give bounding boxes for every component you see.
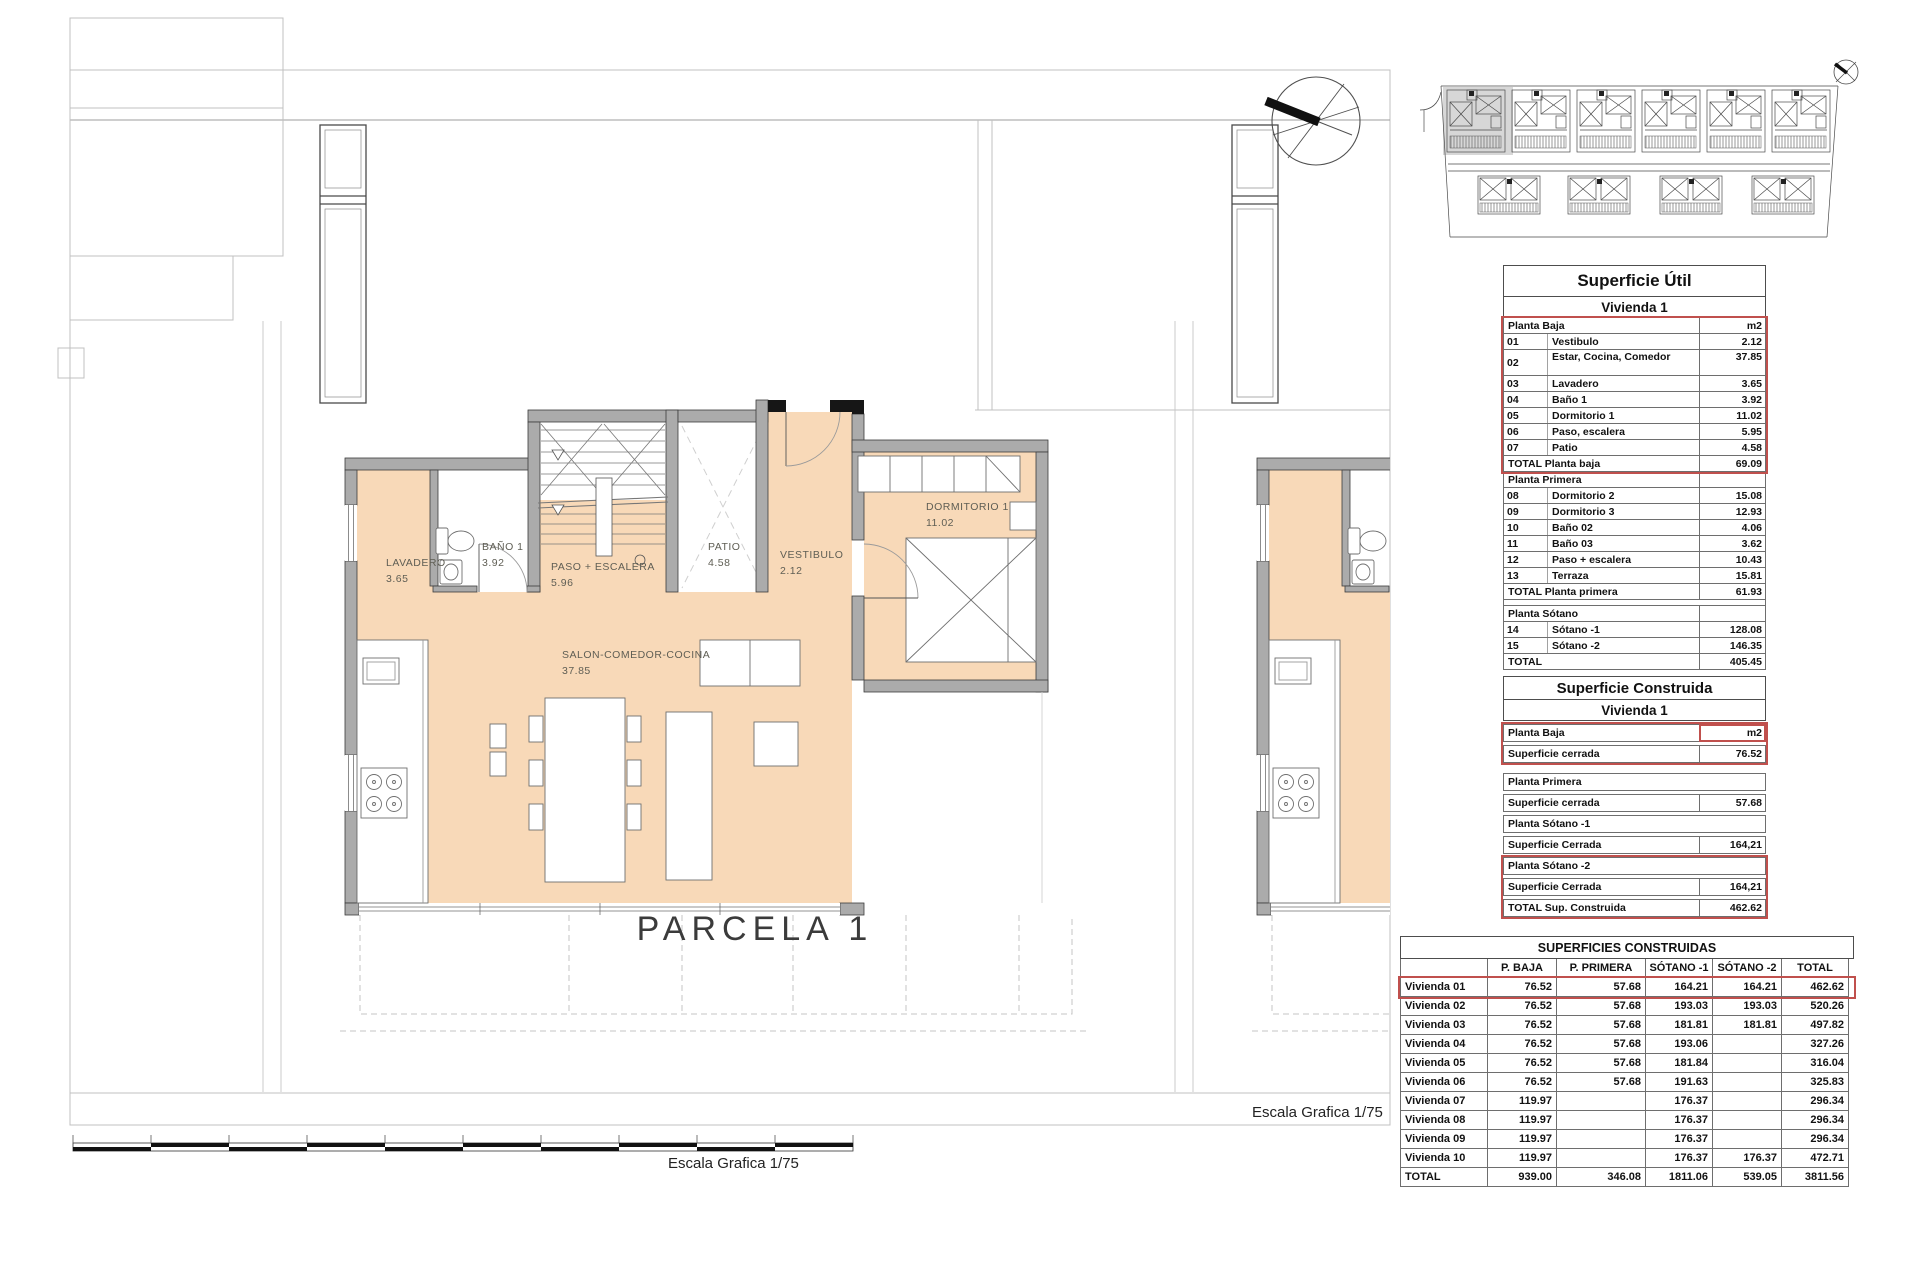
table-title: SUPERFICIES CONSTRUIDAS (1400, 936, 1854, 959)
table-row: 05Dormitorio 111.02 (1503, 408, 1766, 424)
row-label: Lavadero (1548, 376, 1699, 391)
table-row: Vivienda 07119.97176.37296.34 (1400, 1092, 1854, 1111)
row-value: 164.21 (1645, 978, 1713, 997)
row-value: 181.84 (1645, 1054, 1713, 1073)
row-label: Vivienda 08 (1400, 1111, 1488, 1130)
table-row: 02Estar, Cocina, Comedor37.85 (1503, 350, 1766, 376)
row-label: Superficie cerrada (1504, 746, 1699, 762)
row-number: 06 (1504, 424, 1548, 439)
parcel-title: PARCELA 1 (595, 910, 915, 949)
row-value: 10.43 (1699, 552, 1765, 567)
table-row: Planta Primera (1503, 773, 1766, 791)
row-number: 12 (1504, 552, 1548, 567)
row-value: 3811.56 (1781, 1168, 1849, 1187)
row-value (1712, 1073, 1782, 1092)
table-row: TOTAL939.00346.081811.06539.053811.56 (1400, 1168, 1854, 1187)
table-title: Superficie Útil (1503, 265, 1766, 297)
row-label: TOTAL (1400, 1168, 1488, 1187)
table-row: 14Sótano -1128.08 (1503, 622, 1766, 638)
row-value: 164,21 (1699, 879, 1765, 895)
table-row: 11Baño 033.62 (1503, 536, 1766, 552)
row-number: 03 (1504, 376, 1548, 391)
row-value: 3.62 (1699, 536, 1765, 551)
column-header: SÓTANO -2 (1712, 959, 1782, 978)
row-label: Sótano -2 (1548, 638, 1699, 653)
row-value (1556, 1130, 1646, 1149)
table-row: Planta Sótano (1503, 606, 1766, 622)
scale-caption-right: Escala Grafica 1/75 (1252, 1104, 1383, 1121)
row-label: TOTAL Planta primera (1504, 584, 1699, 599)
row-value: m2 (1700, 725, 1765, 741)
room-name: PASO + ESCALERA (551, 561, 655, 573)
table-row: 04Baño 13.92 (1503, 392, 1766, 408)
table-row: 12Paso + escalera10.43 (1503, 552, 1766, 568)
row-value (1712, 1111, 1782, 1130)
row-value: 939.00 (1487, 1168, 1557, 1187)
row-value: 57.68 (1556, 1073, 1646, 1092)
row-value (1712, 1092, 1782, 1111)
row-value: 76.52 (1487, 978, 1557, 997)
red-highlight-box: Planta Bajam201Vestibulo2.1202Estar, Coc… (1503, 318, 1766, 472)
table-row: Vivienda 0476.5257.68193.06327.26 (1400, 1035, 1854, 1054)
row-label: Paso + escalera (1548, 552, 1699, 567)
row-label: Vivienda 04 (1400, 1035, 1488, 1054)
table-header-row: P. BAJAP. PRIMERASÓTANO -1SÓTANO -2TOTAL (1400, 959, 1854, 978)
row-value: 4.58 (1699, 440, 1765, 455)
table-row: 15Sótano -2146.35 (1503, 638, 1766, 654)
row-value: 462.62 (1781, 978, 1849, 997)
table-body: Planta Bajam201Vestibulo2.1202Estar, Coc… (1503, 318, 1766, 670)
room-label-dormitorio1: DORMITORIO 1 11.02 (926, 500, 1009, 532)
table-row: Vivienda 0276.5257.68193.03193.03520.26 (1400, 997, 1854, 1016)
row-value: 15.08 (1699, 488, 1765, 503)
row-value: 119.97 (1487, 1130, 1557, 1149)
site-context-lines (58, 18, 1390, 1125)
row-value: 405.45 (1699, 654, 1765, 669)
row-value: 1811.06 (1645, 1168, 1713, 1187)
row-value: 181.81 (1712, 1016, 1782, 1035)
row-value: 316.04 (1781, 1054, 1849, 1073)
table-row: TOTAL Planta primera61.93 (1503, 584, 1766, 600)
row-value: 325.83 (1781, 1073, 1849, 1092)
row-label: Baño 02 (1548, 520, 1699, 535)
room-area: 37.85 (562, 664, 710, 680)
room-label-paso-escalera: PASO + ESCALERA 5.96 (551, 560, 655, 592)
table-row: Planta Bajam2 (1503, 318, 1766, 334)
scale-bar (73, 1135, 853, 1151)
table-row: 01Vestibulo2.12 (1503, 334, 1766, 350)
row-value: 164,21 (1699, 837, 1765, 853)
room-area: 3.92 (482, 556, 524, 572)
room-name: LAVADERO (386, 557, 446, 569)
red-highlight-box: Planta Sótano -2Superficie Cerrada164,21… (1503, 857, 1766, 917)
room-name: DORMITORIO 1 (926, 501, 1009, 513)
row-label: TOTAL Planta baja (1504, 456, 1699, 471)
row-label: Terraza (1548, 568, 1699, 583)
row-number: 08 (1504, 488, 1548, 503)
row-value: 76.52 (1487, 1073, 1557, 1092)
table-body: Planta Bajam2Superficie cerrada76.52Plan… (1503, 724, 1766, 917)
row-number: 07 (1504, 440, 1548, 455)
row-number: 10 (1504, 520, 1548, 535)
row-value (1556, 1149, 1646, 1168)
row-label: Vivienda 03 (1400, 1016, 1488, 1035)
row-value: 176.37 (1645, 1092, 1713, 1111)
row-value: 296.34 (1781, 1130, 1849, 1149)
table-row: 13Terraza15.81 (1503, 568, 1766, 584)
table-row: Vivienda 08119.97176.37296.34 (1400, 1111, 1854, 1130)
row-value: 327.26 (1781, 1035, 1849, 1054)
row-label: Baño 1 (1548, 392, 1699, 407)
row-value: 57.68 (1556, 1035, 1646, 1054)
row-value: 119.97 (1487, 1149, 1557, 1168)
row-label: Vivienda 01 (1400, 978, 1488, 997)
room-name: VESTIBULO (780, 549, 843, 561)
row-label: TOTAL (1504, 654, 1699, 669)
row-value: 57.68 (1699, 795, 1765, 811)
table-row: 10Baño 024.06 (1503, 520, 1766, 536)
row-value: 57.68 (1556, 997, 1646, 1016)
table-row: Vivienda 0176.5257.68164.21164.21462.62 (1400, 978, 1854, 997)
row-value: 164.21 (1712, 978, 1782, 997)
column-header (1400, 959, 1488, 978)
room-area: 11.02 (926, 516, 1009, 532)
row-value: 5.95 (1699, 424, 1765, 439)
row-number: 01 (1504, 334, 1548, 349)
row-value: 176.37 (1645, 1130, 1713, 1149)
table-row: TOTAL Sup. Construida462.62 (1503, 899, 1766, 917)
row-value: 520.26 (1781, 997, 1849, 1016)
table-row: Superficie cerrada76.52 (1503, 745, 1766, 763)
row-number: 13 (1504, 568, 1548, 583)
table-title: Superficie Construida (1503, 676, 1766, 700)
row-value: 539.05 (1712, 1168, 1782, 1187)
table-row: Vivienda 10119.97176.37176.37472.71 (1400, 1149, 1854, 1168)
table-row: TOTAL405.45 (1503, 654, 1766, 670)
table-row: Planta Sótano -1 (1503, 815, 1766, 833)
row-label: Planta Baja (1504, 318, 1699, 333)
row-value: 497.82 (1781, 1016, 1849, 1035)
north-compass-icon (1266, 77, 1360, 165)
row-value: 12.93 (1699, 504, 1765, 519)
row-value: 176.37 (1645, 1111, 1713, 1130)
row-label: Planta Baja (1504, 725, 1700, 741)
row-value: 191.63 (1645, 1073, 1713, 1092)
row-value: 11.02 (1699, 408, 1765, 423)
row-value: 146.35 (1699, 638, 1765, 653)
room-area: 4.58 (708, 556, 740, 572)
table-row: Superficie Cerrada164,21 (1503, 836, 1766, 854)
row-value (1699, 472, 1765, 487)
row-value: 472.71 (1781, 1149, 1849, 1168)
row-label: Patio (1548, 440, 1699, 455)
row-value (1712, 1054, 1782, 1073)
table-row: Superficie Cerrada164,21 (1503, 878, 1766, 896)
row-label: Estar, Cocina, Comedor (1548, 350, 1699, 375)
row-value: 3.92 (1699, 392, 1765, 407)
row-label: Vestibulo (1548, 334, 1699, 349)
row-label: Vivienda 07 (1400, 1092, 1488, 1111)
row-label: Planta Primera (1504, 774, 1765, 790)
row-value (1556, 1111, 1646, 1130)
row-value: 296.34 (1781, 1111, 1849, 1130)
row-value: 76.52 (1699, 746, 1765, 762)
table-row: Vivienda 0576.5257.68181.84316.04 (1400, 1054, 1854, 1073)
row-value: 76.52 (1487, 1035, 1557, 1054)
column-header: SÓTANO -1 (1645, 959, 1713, 978)
row-number: 04 (1504, 392, 1548, 407)
row-label: Planta Primera (1504, 472, 1699, 487)
row-label: Baño 03 (1548, 536, 1699, 551)
row-value (1699, 606, 1765, 621)
table-row: 07Patio4.58 (1503, 440, 1766, 456)
table-row: Vivienda 0676.5257.68191.63325.83 (1400, 1073, 1854, 1092)
row-label: Dormitorio 3 (1548, 504, 1699, 519)
row-value (1556, 1092, 1646, 1111)
table-row: 06Paso, escalera5.95 (1503, 424, 1766, 440)
row-number: 05 (1504, 408, 1548, 423)
table-subtitle: Vivienda 1 (1503, 297, 1766, 318)
row-label: Vivienda 06 (1400, 1073, 1488, 1092)
row-number: 15 (1504, 638, 1548, 653)
row-value: 57.68 (1556, 1016, 1646, 1035)
row-label: Vivienda 05 (1400, 1054, 1488, 1073)
row-number: 09 (1504, 504, 1548, 519)
room-area: 2.12 (780, 564, 843, 580)
row-value: 69.09 (1699, 456, 1765, 471)
table-row: Superficie cerrada57.68 (1503, 794, 1766, 812)
room-label-salon: SALON-COMEDOR-COCINA 37.85 (562, 648, 710, 680)
red-highlight-box: Planta Bajam2Superficie cerrada76.52 (1503, 724, 1766, 763)
room-name: BAÑO 1 (482, 541, 524, 553)
row-value: 3.65 (1699, 376, 1765, 391)
row-value: 296.34 (1781, 1092, 1849, 1111)
table-row: 09Dormitorio 312.93 (1503, 504, 1766, 520)
room-label-patio: PATIO 4.58 (708, 540, 740, 572)
row-value: m2 (1699, 318, 1765, 333)
scale-caption-bottom: Escala Grafica 1/75 (668, 1155, 799, 1172)
row-value: 76.52 (1487, 1016, 1557, 1035)
row-value: 119.97 (1487, 1111, 1557, 1130)
row-number: 14 (1504, 622, 1548, 637)
room-name: SALON-COMEDOR-COCINA (562, 649, 710, 661)
row-number: 11 (1504, 536, 1548, 551)
table-row: Planta Sótano -2 (1503, 857, 1766, 875)
row-value: 346.08 (1556, 1168, 1646, 1187)
column-header: P. PRIMERA (1556, 959, 1646, 978)
row-value: 462.62 (1699, 900, 1765, 916)
room-name: PATIO (708, 541, 740, 553)
table-body: P. BAJAP. PRIMERASÓTANO -1SÓTANO -2TOTAL… (1400, 959, 1854, 1187)
row-value (1712, 1130, 1782, 1149)
row-label: Vivienda 02 (1400, 997, 1488, 1016)
row-number: 02 (1504, 350, 1548, 375)
row-value: 193.06 (1645, 1035, 1713, 1054)
superficies-construidas-table: SUPERFICIES CONSTRUIDAS P. BAJAP. PRIMER… (1400, 936, 1854, 1187)
row-value: 193.03 (1712, 997, 1782, 1016)
row-label: Vivienda 09 (1400, 1130, 1488, 1149)
blueprint-canvas: LAVADERO 3.65 BAÑO 1 3.92 PASO + ESCALER… (0, 0, 1920, 1280)
row-label: TOTAL Sup. Construida (1504, 900, 1699, 916)
row-value: 193.03 (1645, 997, 1713, 1016)
row-value: 37.85 (1699, 350, 1765, 375)
table-row: TOTAL Planta baja69.09 (1503, 456, 1766, 472)
row-label: Planta Sótano -2 (1504, 858, 1765, 874)
row-value: 61.93 (1699, 584, 1765, 599)
row-label: Paso, escalera (1548, 424, 1699, 439)
row-label: Superficie Cerrada (1504, 879, 1699, 895)
row-value: 57.68 (1556, 1054, 1646, 1073)
row-label: Planta Sótano -1 (1504, 816, 1765, 832)
room-area: 3.65 (386, 572, 446, 588)
room-area: 5.96 (551, 576, 655, 592)
row-label: Planta Sótano (1504, 606, 1699, 621)
row-value (1712, 1035, 1782, 1054)
mini-compass-icon (1834, 60, 1858, 84)
row-value: 4.06 (1699, 520, 1765, 535)
row-label: Superficie cerrada (1504, 795, 1699, 811)
row-label: Dormitorio 1 (1548, 408, 1699, 423)
row-value: 181.81 (1645, 1016, 1713, 1035)
row-value: 57.68 (1556, 978, 1646, 997)
column-header: P. BAJA (1487, 959, 1557, 978)
row-value: 76.52 (1487, 1054, 1557, 1073)
row-value: 128.08 (1699, 622, 1765, 637)
site-overview-map (1420, 60, 1858, 237)
superficie-util-table: Superficie Útil Vivienda 1 Planta Bajam2… (1503, 265, 1766, 670)
table-row: 03Lavadero3.65 (1503, 376, 1766, 392)
table-row: Planta Bajam2 (1503, 724, 1766, 742)
room-label-bano1: BAÑO 1 3.92 (482, 540, 524, 572)
row-label: Sótano -1 (1548, 622, 1699, 637)
table-row: Vivienda 0376.5257.68181.81181.81497.82 (1400, 1016, 1854, 1035)
row-value: 76.52 (1487, 997, 1557, 1016)
column-header: TOTAL (1781, 959, 1849, 978)
table-subtitle: Vivienda 1 (1503, 700, 1766, 721)
room-label-lavadero: LAVADERO 3.65 (386, 556, 446, 588)
table-row: 08Dormitorio 215.08 (1503, 488, 1766, 504)
row-label: Superficie Cerrada (1504, 837, 1699, 853)
row-value: 119.97 (1487, 1092, 1557, 1111)
row-value: 15.81 (1699, 568, 1765, 583)
table-row: Vivienda 09119.97176.37296.34 (1400, 1130, 1854, 1149)
row-value: 176.37 (1645, 1149, 1713, 1168)
row-value: 176.37 (1712, 1149, 1782, 1168)
table-row: Planta Primera (1503, 472, 1766, 488)
row-label: Vivienda 10 (1400, 1149, 1488, 1168)
row-value: 2.12 (1699, 334, 1765, 349)
row-label: Dormitorio 2 (1548, 488, 1699, 503)
room-label-vestibulo: VESTIBULO 2.12 (780, 548, 843, 580)
superficie-construida-table: Superficie Construida Vivienda 1 Planta … (1503, 676, 1766, 917)
